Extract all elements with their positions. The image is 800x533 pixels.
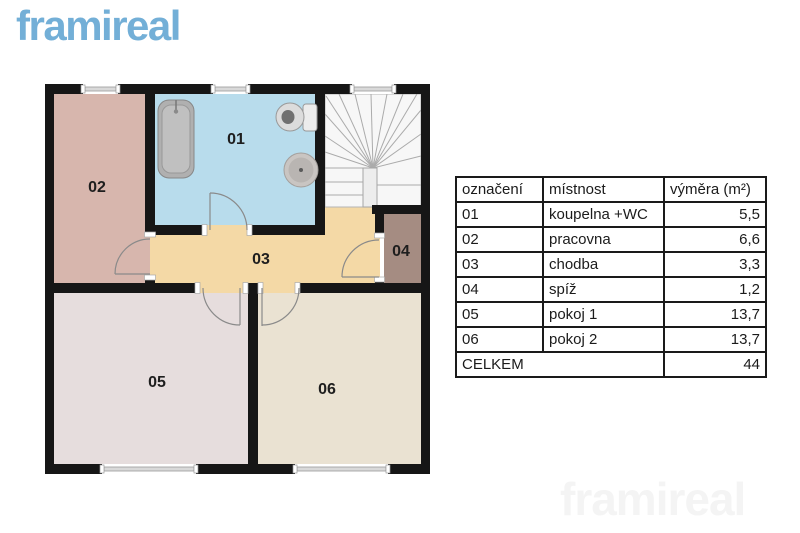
room-label-03: 03 [252, 251, 270, 268]
window-top-right [350, 84, 396, 94]
table-header-row: označení místnost výměra (m²) [456, 177, 766, 202]
table-row: 04 spíž 1,2 [456, 277, 766, 302]
room-name: koupelna +WC [543, 202, 664, 227]
table-row: 06 pokoj 2 13,7 [456, 327, 766, 352]
room-code: 04 [456, 277, 543, 302]
window-top-middle [211, 84, 250, 94]
room-area-value: 3,3 [664, 252, 766, 277]
staircase [325, 94, 421, 207]
header-designation: označení [456, 177, 543, 202]
window-top-left [81, 84, 120, 94]
room-name: pracovna [543, 227, 664, 252]
header-room: místnost [543, 177, 664, 202]
window-bottom-right [293, 464, 390, 474]
room-name: pokoj 2 [543, 327, 664, 352]
room-area-value: 13,7 [664, 327, 766, 352]
table-row: 03 chodba 3,3 [456, 252, 766, 277]
stair-newel [363, 168, 377, 207]
sink-icon [284, 153, 318, 187]
brand-logo: framireal [16, 2, 180, 50]
watermark: framireal [560, 472, 745, 526]
room-areas-table: označení místnost výměra (m²) 01 koupeln… [455, 176, 767, 378]
total-label: CELKEM [456, 352, 664, 377]
table-row: 05 pokoj 1 13,7 [456, 302, 766, 327]
room-code: 03 [456, 252, 543, 277]
table-row: 01 koupelna +WC 5,5 [456, 202, 766, 227]
room-area-value: 6,6 [664, 227, 766, 252]
total-value: 44 [664, 352, 766, 377]
room-code: 02 [456, 227, 543, 252]
room-03-corridor-area2 [321, 207, 380, 293]
room-name: spíž [543, 277, 664, 302]
room-area-value: 5,5 [664, 202, 766, 227]
room-name: pokoj 1 [543, 302, 664, 327]
table-total-row: CELKEM 44 [456, 352, 766, 377]
table-row: 02 pracovna 6,6 [456, 227, 766, 252]
room-label-06: 06 [318, 381, 336, 398]
page: { "logo": { "text": "framireal", "color"… [0, 0, 800, 533]
room-name: chodba [543, 252, 664, 277]
room-code: 05 [456, 302, 543, 327]
room-label-05: 05 [148, 374, 166, 391]
room-label-04: 04 [392, 243, 410, 260]
toilet-icon [276, 103, 317, 131]
floor-plan: 01 02 03 04 05 06 [45, 84, 430, 474]
room-label-01: 01 [227, 131, 245, 148]
header-area: výměra (m²) [664, 177, 766, 202]
room-code: 01 [456, 202, 543, 227]
room-area-value: 1,2 [664, 277, 766, 302]
room-code: 06 [456, 327, 543, 352]
room-area-value: 13,7 [664, 302, 766, 327]
bathtub-icon [158, 100, 194, 178]
room-label-02: 02 [88, 179, 106, 196]
window-bottom-left [100, 464, 198, 474]
